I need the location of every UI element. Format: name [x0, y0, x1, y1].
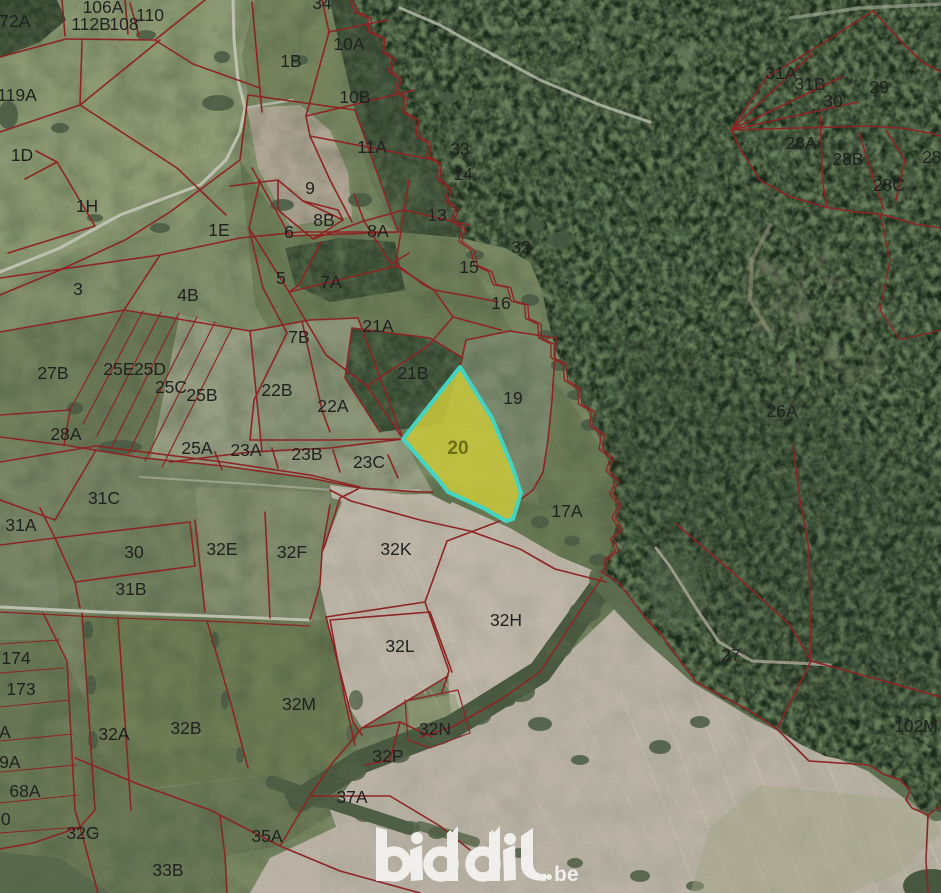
- svg-text:be: be: [554, 863, 579, 886]
